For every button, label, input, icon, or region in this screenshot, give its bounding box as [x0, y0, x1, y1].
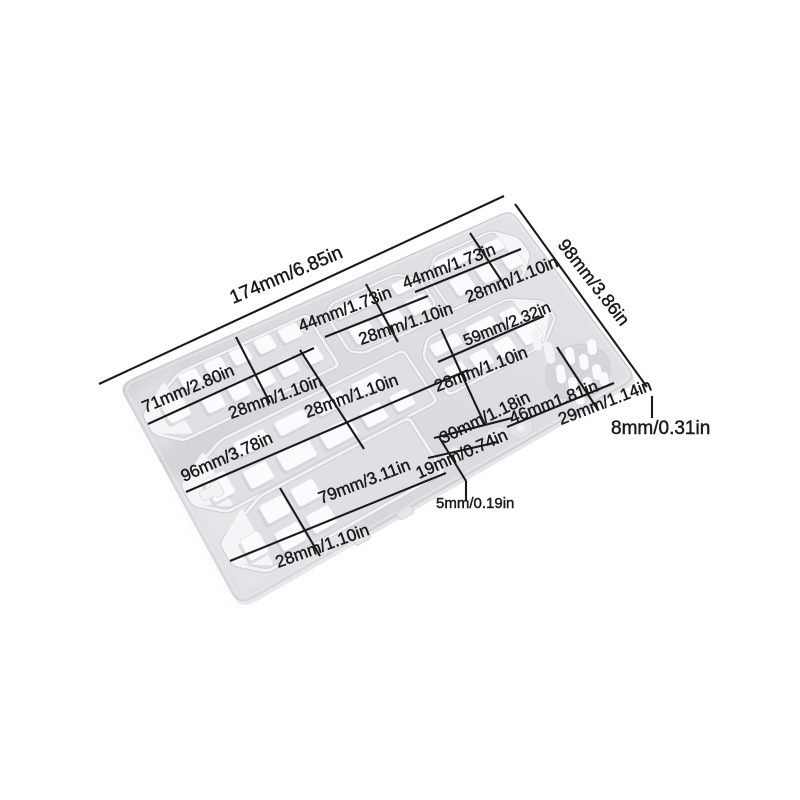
svg-text:8mm/0.31in: 8mm/0.31in — [611, 418, 710, 439]
svg-text:5mm/0.19in: 5mm/0.19in — [436, 495, 514, 512]
